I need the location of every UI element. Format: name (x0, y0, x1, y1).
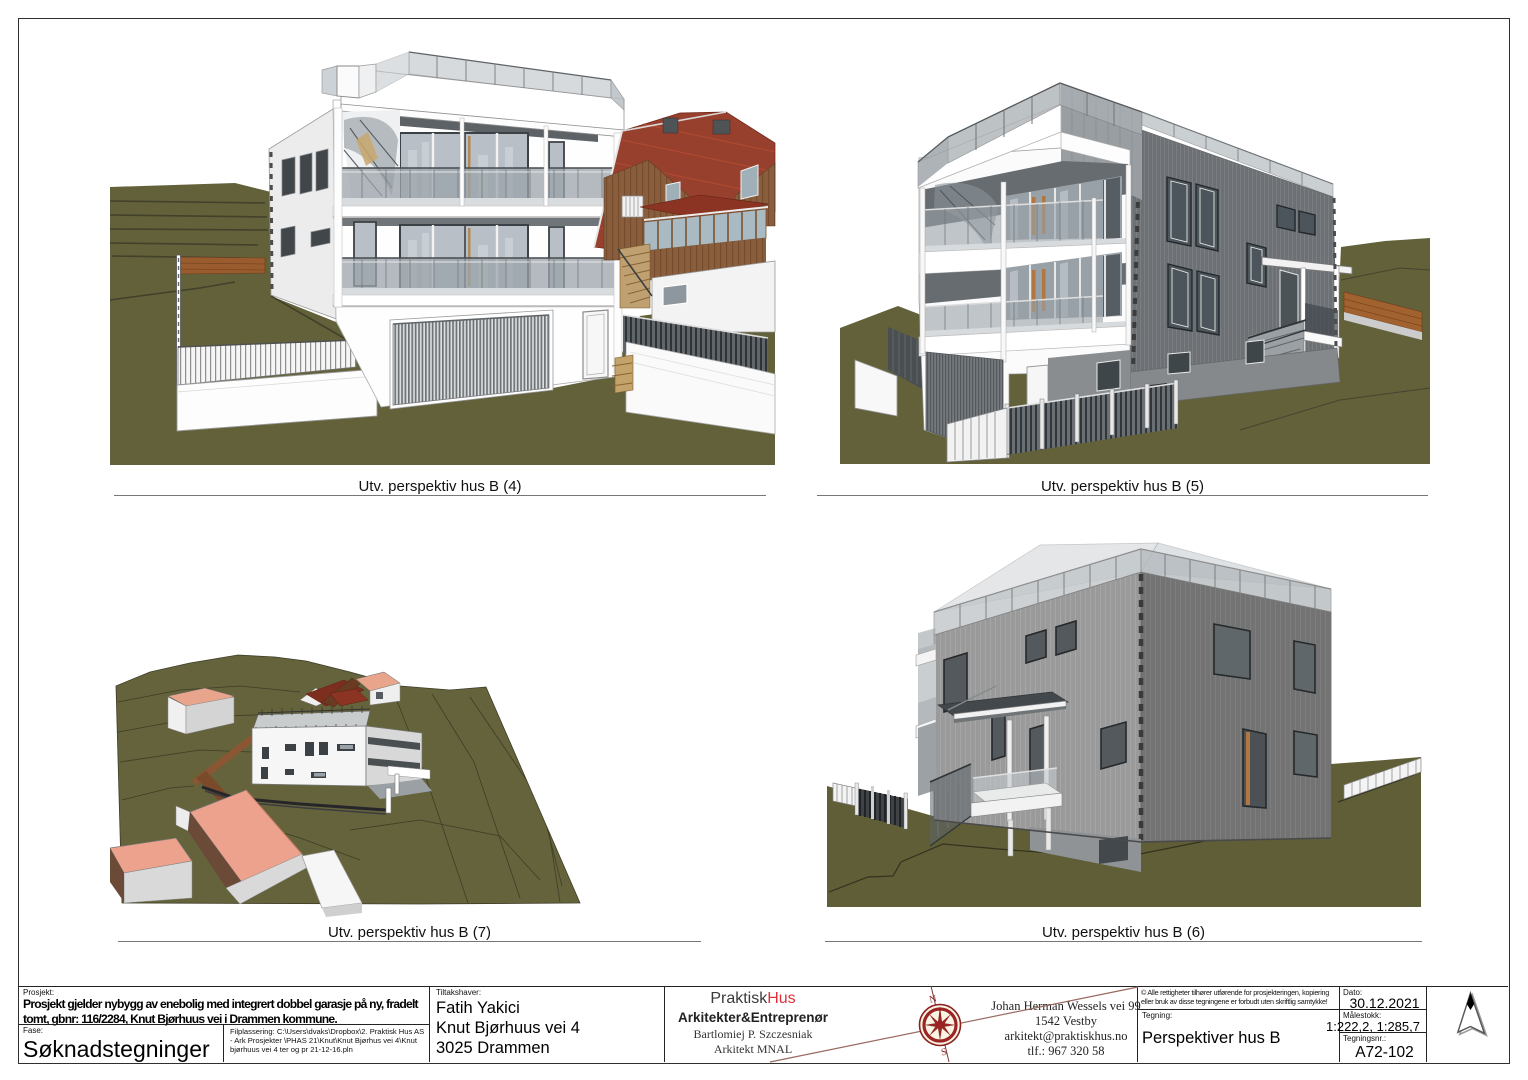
svg-text:N: N (928, 993, 938, 1005)
svg-text:S: S (940, 1046, 948, 1058)
